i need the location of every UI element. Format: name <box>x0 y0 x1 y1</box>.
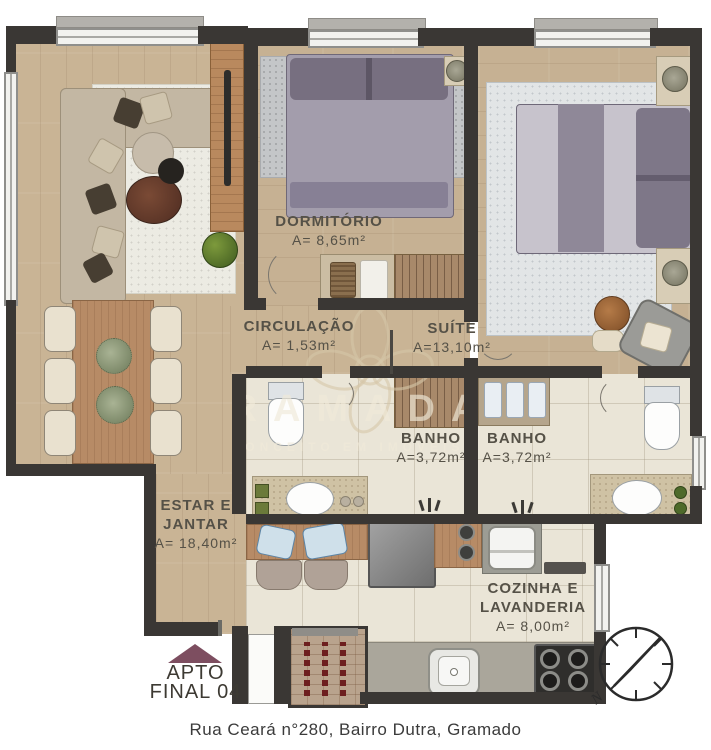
bed-runner <box>558 104 604 252</box>
dining-chair <box>150 358 182 404</box>
wall-segment <box>144 622 218 636</box>
shower-drain-icon <box>521 500 524 514</box>
toilet-bowl <box>644 402 680 450</box>
bed-pillows <box>636 108 690 248</box>
bed-runner <box>290 182 448 208</box>
faucet-knob-icon <box>353 496 364 507</box>
sink-drain-icon <box>450 668 458 676</box>
lamp-icon <box>662 66 688 92</box>
room-label-banho2: BANHO A=3,72m² <box>470 430 564 466</box>
shower-drain-icon <box>428 498 431 512</box>
lamp-icon <box>662 260 688 286</box>
room-name: CIRCULAÇÃO <box>234 318 364 337</box>
dining-table <box>72 300 154 464</box>
cooktop-burner-icon <box>458 524 475 541</box>
room-label-dormitorio: DORMITÓRIO A= 8,65m² <box>256 213 402 249</box>
north-needle-icon <box>614 638 660 686</box>
side-table-wood <box>594 296 630 332</box>
wall-segment <box>690 486 702 524</box>
window <box>534 30 656 48</box>
window <box>308 30 424 48</box>
door-leaf <box>390 330 393 374</box>
room-label-suite: SUÍTE A=13,10m² <box>398 320 506 356</box>
centerpiece-flowers-icon <box>96 338 132 374</box>
room-name: BANHO <box>470 430 564 449</box>
room-name: BANHO <box>384 430 478 449</box>
room-name: JANTAR <box>146 516 246 535</box>
door-swing-arc <box>322 378 354 410</box>
wall-segment <box>464 42 478 308</box>
dining-chair <box>44 410 76 456</box>
window-sill <box>56 16 204 28</box>
plant-icon <box>202 232 238 268</box>
room-label-cozinha: COZINHA E LAVANDERIA A= 8,00m² <box>474 580 592 635</box>
skewer-icon <box>340 642 346 696</box>
bar-stool <box>304 560 348 590</box>
room-area: A= 8,65m² <box>256 232 402 250</box>
room-area: A=3,72m² <box>384 449 478 467</box>
room-label-banho1: BANHO A=3,72m² <box>384 430 478 466</box>
window-sill <box>534 18 658 30</box>
unit-line2: FINAL 04 <box>133 683 258 702</box>
stove-burner-icon <box>540 671 560 691</box>
dining-chair <box>44 358 76 404</box>
wall-segment <box>350 366 466 378</box>
bbq-grill <box>288 626 368 708</box>
bbq-top-band <box>292 628 358 636</box>
address-caption: Rua Ceará n°280, Bairro Dutra, Gramado <box>0 720 711 740</box>
window <box>4 72 18 306</box>
wall-segment <box>198 26 248 44</box>
folded-linen-icon <box>360 260 388 300</box>
wall-segment <box>6 300 16 476</box>
room-area: A=3,72m² <box>470 449 564 467</box>
bar-stool <box>256 560 302 590</box>
dining-chair <box>150 306 182 352</box>
tv-icon <box>224 70 231 186</box>
room-area: A= 18,40m² <box>146 535 246 553</box>
door-swing-arc <box>268 248 322 302</box>
kitchen-cabinet <box>434 518 482 568</box>
centerpiece-flowers-icon <box>96 386 134 424</box>
room-name: COZINHA E <box>474 580 592 599</box>
dining-chair <box>44 306 76 352</box>
floor-plan: RAMADA CONCEITO EM IMÓVEIS <box>0 0 711 750</box>
room-name: LAVANDERIA <box>474 599 592 618</box>
plant-pot-icon <box>674 486 687 499</box>
stove-burner-icon <box>568 649 588 669</box>
wall-segment <box>6 464 156 476</box>
door-swing-mark <box>218 620 222 636</box>
wall-segment <box>638 366 702 378</box>
window <box>56 28 204 46</box>
wall-segment <box>650 28 702 46</box>
skewer-icon <box>322 642 328 696</box>
wall-segment <box>232 374 246 514</box>
unit-arrow-icon <box>168 644 222 663</box>
room-name: ESTAR E <box>146 497 246 516</box>
room-label-circulacao: CIRCULAÇÃO A= 1,53m² <box>234 318 364 354</box>
bed-pillows <box>290 58 448 100</box>
stove-burner-icon <box>540 649 560 669</box>
wall-segment <box>360 692 600 704</box>
wall-segment <box>476 366 602 378</box>
room-area: A= 1,53m² <box>234 337 364 355</box>
wall-segment <box>244 28 258 310</box>
sink-oval <box>286 482 334 516</box>
coffee-table-black <box>158 158 184 184</box>
room-name: SUÍTE <box>398 320 506 339</box>
door-swing-arc <box>600 378 640 418</box>
wall-segment <box>6 26 16 72</box>
basket-icon <box>330 262 356 298</box>
soap-dish-icon <box>255 484 269 498</box>
unit-label: APTO FINAL 04 <box>133 664 258 702</box>
window <box>692 436 706 490</box>
laundry-tank <box>488 526 536 570</box>
dining-chair <box>150 410 182 456</box>
faucet-knob-icon <box>340 496 351 507</box>
sink-oval <box>612 480 662 516</box>
room-area: A=13,10m² <box>398 339 506 357</box>
wall-segment <box>246 366 322 378</box>
north-label: N <box>587 689 606 709</box>
wall-shelf <box>544 562 586 574</box>
wall-segment <box>318 298 468 310</box>
cooktop-burner-icon <box>458 544 475 561</box>
entry-door-jamb <box>274 626 288 704</box>
refrigerator <box>368 518 436 588</box>
room-name: DORMITÓRIO <box>256 213 402 232</box>
wall-segment <box>246 298 266 310</box>
skewer-icon <box>304 642 310 696</box>
room-label-estar: ESTAR E JANTAR A= 18,40m² <box>146 497 246 552</box>
stove-burner-icon <box>568 671 588 691</box>
room-area: A= 8,00m² <box>474 618 592 636</box>
wall-segment <box>478 28 536 46</box>
compass-icon: N <box>586 614 686 714</box>
window-sill <box>308 18 426 30</box>
